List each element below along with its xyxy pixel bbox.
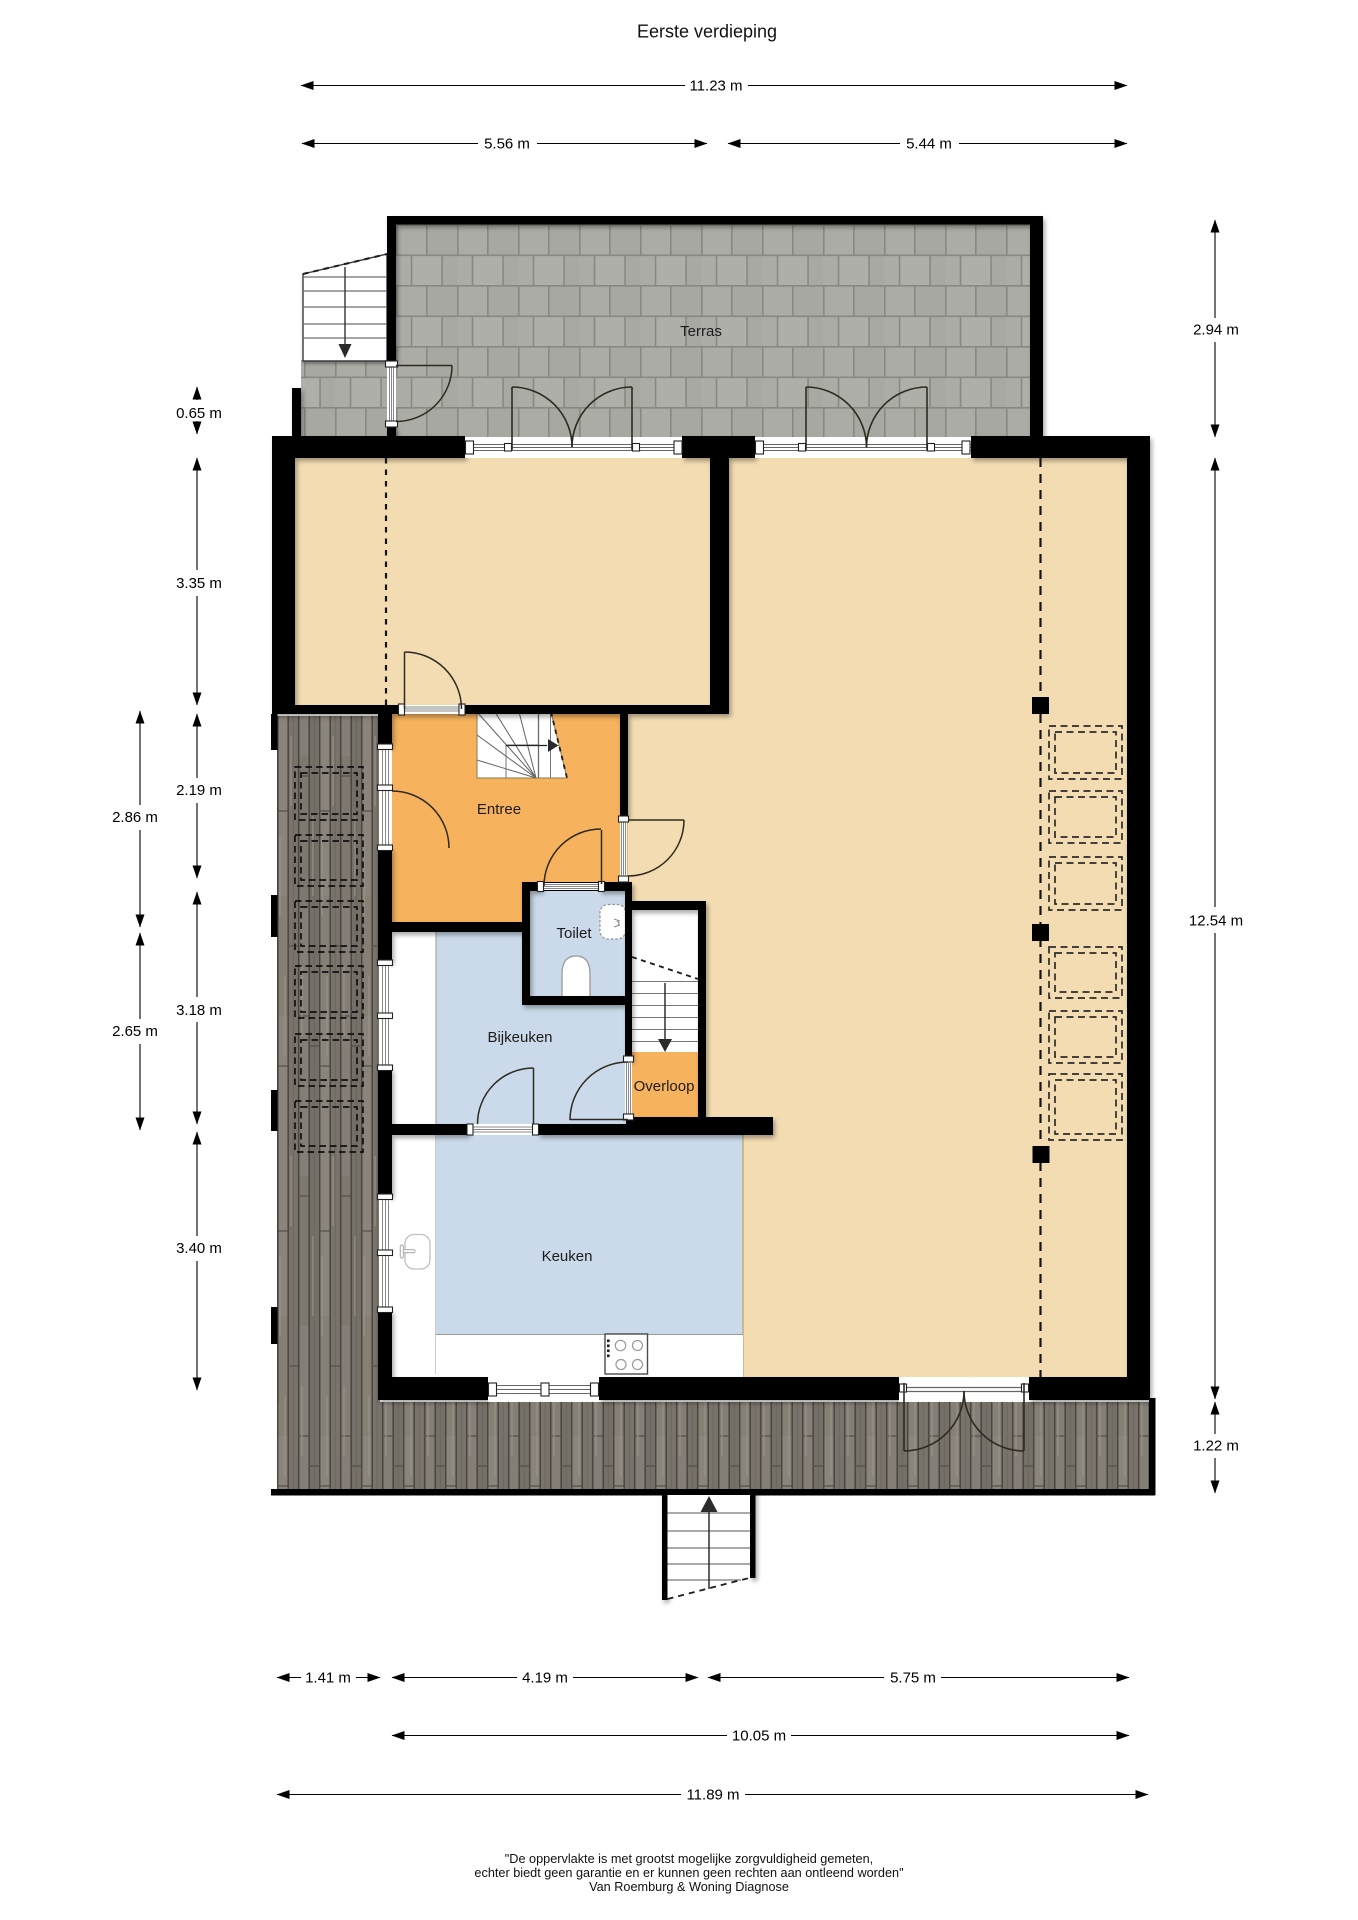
svg-text:Terras: Terras xyxy=(680,323,722,340)
svg-text:2.19 m: 2.19 m xyxy=(176,782,222,799)
svg-text:4.19 m: 4.19 m xyxy=(522,1670,568,1687)
svg-text:Van Roemburg & Woning Diagnose: Van Roemburg & Woning Diagnose xyxy=(589,1880,789,1894)
svg-text:3.18 m: 3.18 m xyxy=(176,1002,222,1019)
svg-text:1.22 m: 1.22 m xyxy=(1193,1438,1239,1455)
svg-text:Bijkeuken: Bijkeuken xyxy=(487,1029,552,1046)
svg-text:Overloop: Overloop xyxy=(634,1078,695,1095)
svg-text:10.05 m: 10.05 m xyxy=(732,1728,786,1745)
svg-text:12.54 m: 12.54 m xyxy=(1189,913,1243,930)
svg-text:5.75 m: 5.75 m xyxy=(890,1670,936,1687)
svg-text:11.23 m: 11.23 m xyxy=(689,78,742,95)
svg-text:Toilet: Toilet xyxy=(556,925,592,942)
svg-text:3.40 m: 3.40 m xyxy=(176,1240,222,1257)
svg-text:echter biedt geen garantie en: echter biedt geen garantie en er kunnen … xyxy=(474,1866,903,1880)
svg-text:Eerste verdieping: Eerste verdieping xyxy=(637,22,777,42)
svg-text:2.94 m: 2.94 m xyxy=(1193,322,1239,339)
svg-text:2.86 m: 2.86 m xyxy=(112,809,158,826)
svg-text:5.56 m: 5.56 m xyxy=(484,136,530,153)
svg-text:2.65 m: 2.65 m xyxy=(112,1023,158,1040)
svg-text:Entree: Entree xyxy=(477,801,521,818)
svg-text:3.35 m: 3.35 m xyxy=(176,575,222,592)
svg-text:0.65 m: 0.65 m xyxy=(176,405,222,422)
svg-text:11.89 m: 11.89 m xyxy=(686,1787,739,1804)
svg-text:1.41 m: 1.41 m xyxy=(305,1670,351,1687)
svg-text:Keuken: Keuken xyxy=(542,1248,593,1265)
svg-text:5.44 m: 5.44 m xyxy=(906,136,952,153)
svg-text:"De oppervlakte is met grootst: "De oppervlakte is met grootst mogelijke… xyxy=(505,1852,873,1866)
